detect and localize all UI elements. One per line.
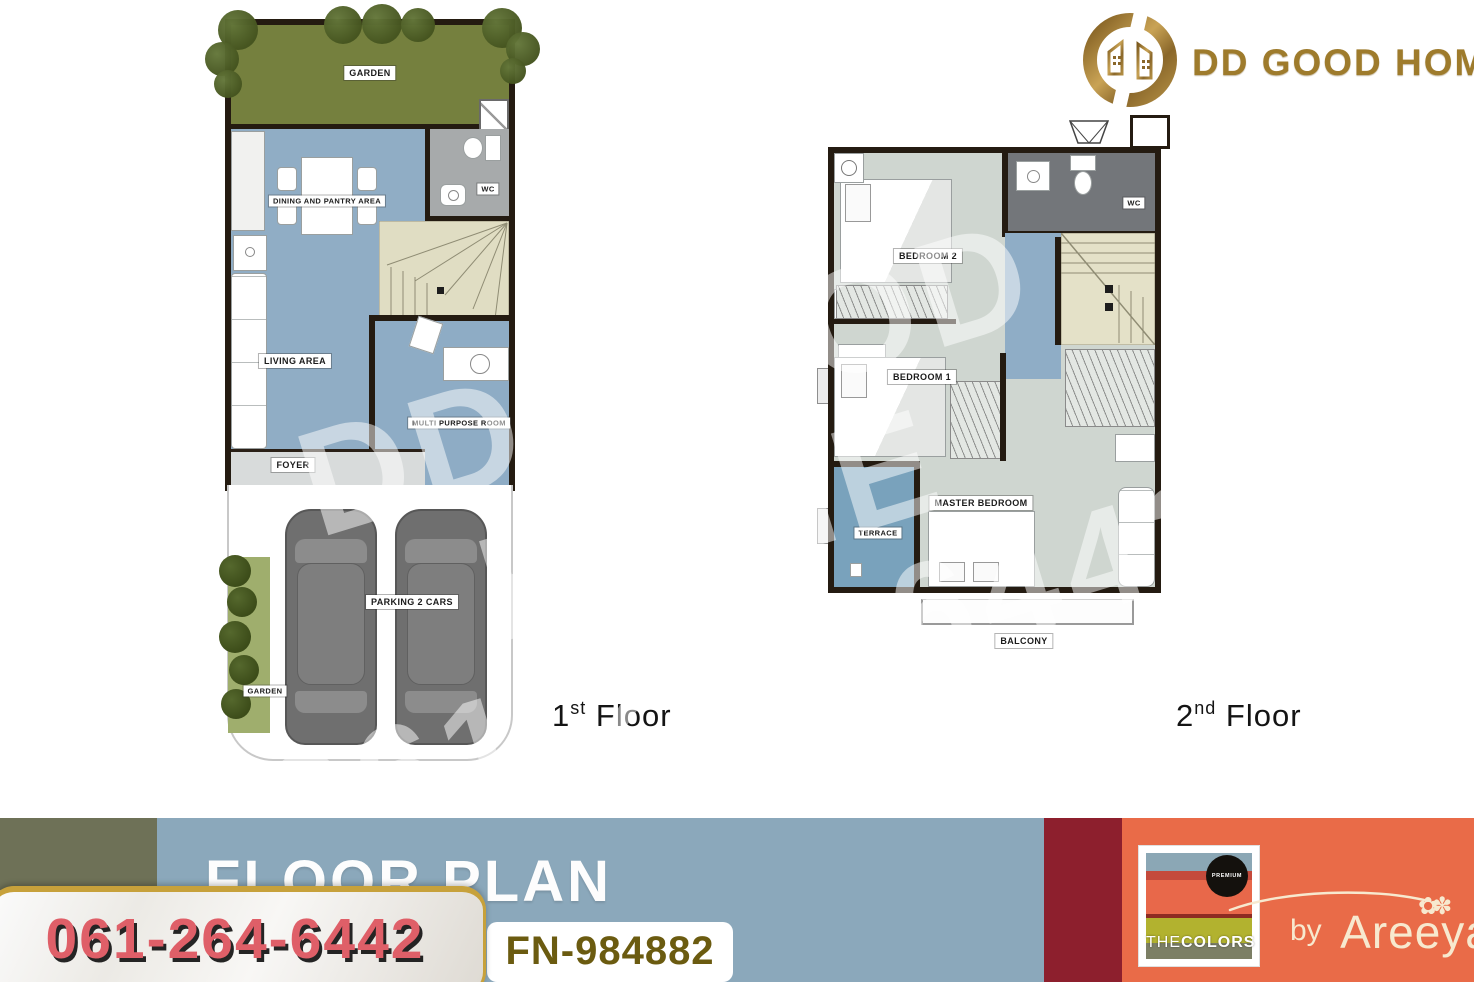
- caption-number: 2: [1176, 698, 1194, 733]
- tree: [500, 58, 526, 84]
- kitchen-sink: [233, 235, 267, 271]
- by-word: by: [1290, 914, 1322, 947]
- walk-in-closet: [1065, 349, 1155, 427]
- living-label: LIVING AREA: [259, 354, 331, 368]
- bush: [219, 621, 251, 653]
- tree: [362, 4, 402, 44]
- bed: [840, 179, 952, 283]
- kitchen-counter: [231, 131, 265, 231]
- caption-second-floor: 2nd Floor: [1176, 698, 1302, 734]
- wc2-label: WC: [1123, 198, 1144, 209]
- caption-ordinal: st: [570, 698, 586, 718]
- room-wc-floor2: WC: [1008, 153, 1155, 233]
- desk-chair: [409, 316, 444, 354]
- hallway: [1005, 233, 1061, 379]
- wardrobe: [836, 285, 948, 319]
- stairs-floor1: [379, 221, 509, 323]
- foyer-label: FOYER: [271, 458, 314, 472]
- toilet: [1074, 171, 1092, 195]
- house-outline-floor1: GARDEN DINING AND PANTRY AREA WC: [225, 19, 515, 491]
- drain: [850, 563, 862, 577]
- tree: [324, 6, 362, 44]
- wall: [834, 319, 956, 324]
- dining-label: DINING AND PANTRY AREA: [269, 196, 385, 207]
- second-floor-plan: BEDROOM 2 WC: [828, 113, 1180, 673]
- dd-monogram-houses-icon: [1078, 10, 1182, 115]
- caption-word: Floor: [1226, 698, 1302, 733]
- brand-name: DD GOOD HOME: [1192, 42, 1474, 84]
- areeya-byline: by Areeya: [1290, 905, 1474, 959]
- wall: [1000, 353, 1006, 461]
- side-garden-label: GARDEN: [244, 686, 287, 697]
- balcony-label: BALCONY: [995, 634, 1052, 648]
- wc-label: WC: [477, 184, 498, 195]
- banner-olive-block: [0, 818, 157, 890]
- room-foyer: [231, 449, 425, 485]
- parking-label: PARKING 2 CARS: [366, 595, 458, 609]
- banner-maroon-strip: [1044, 818, 1122, 982]
- bush: [219, 555, 251, 587]
- toilet-tank: [485, 135, 501, 161]
- sofa: [1118, 487, 1155, 587]
- phone-panel: 061-264-6442: [0, 886, 486, 982]
- thecolors-wordmark: THECOLORS: [1146, 934, 1252, 952]
- tree: [214, 70, 242, 98]
- sink: [440, 184, 466, 206]
- dresser: [1115, 434, 1155, 462]
- caption-word: Floor: [596, 698, 672, 733]
- brand-header: DD GOOD HOME: [1070, 8, 1470, 112]
- first-floor-plan: GARDEN DINING AND PANTRY AREA WC: [225, 15, 517, 765]
- car: [285, 509, 377, 745]
- desk: [443, 347, 509, 381]
- caption-number: 1: [552, 698, 570, 733]
- master-bed: [928, 511, 1035, 587]
- closet: [950, 381, 1002, 459]
- balcony: [921, 599, 1134, 625]
- dining-chair: [357, 167, 377, 191]
- sink: [1016, 161, 1050, 191]
- master-bedroom-label: MASTER BEDROOM: [929, 496, 1032, 510]
- multi-purpose-label: MULTI PURPOSE ROOM: [408, 418, 510, 429]
- stairs-floor2: [1061, 233, 1155, 345]
- phone-number: 061-264-6442: [0, 906, 477, 972]
- floor-plan-flyer: DD GOOD HOME GARDEN DINING AND PANTRY AR…: [0, 0, 1474, 982]
- bedside-table: [834, 153, 864, 183]
- bedroom1-label: BEDROOM 1: [888, 370, 956, 384]
- caption-first-floor: 1st Floor: [552, 698, 672, 734]
- vent-icon: [1066, 119, 1112, 145]
- toilet: [463, 137, 483, 159]
- room-wc-floor1: WC: [425, 129, 509, 221]
- house-outline-floor2: BEDROOM 2 WC: [828, 147, 1161, 593]
- toilet-tank: [1070, 155, 1096, 171]
- bedroom2-label: BEDROOM 2: [894, 249, 962, 263]
- terrace: TERRACE: [834, 461, 920, 587]
- garden-label: GARDEN: [344, 66, 395, 80]
- terrace-label: TERRACE: [854, 528, 901, 539]
- caption-ordinal: nd: [1194, 698, 1216, 718]
- bush: [227, 587, 257, 617]
- bush: [229, 655, 259, 685]
- dining-chair: [277, 167, 297, 191]
- shaft-protrusion: [1130, 115, 1170, 149]
- thecolors-the: THE: [1146, 934, 1181, 951]
- car: [395, 509, 487, 745]
- reference-code-badge: FN-984882: [487, 922, 733, 982]
- areeya-wordmark: Areeya: [1340, 906, 1474, 958]
- thecolors-colors: COLORS: [1181, 934, 1255, 951]
- parking-area: GARDEN PARKING 2 CARS: [227, 485, 513, 761]
- flower-icon: ✿✽: [1418, 892, 1446, 921]
- tree: [401, 8, 435, 42]
